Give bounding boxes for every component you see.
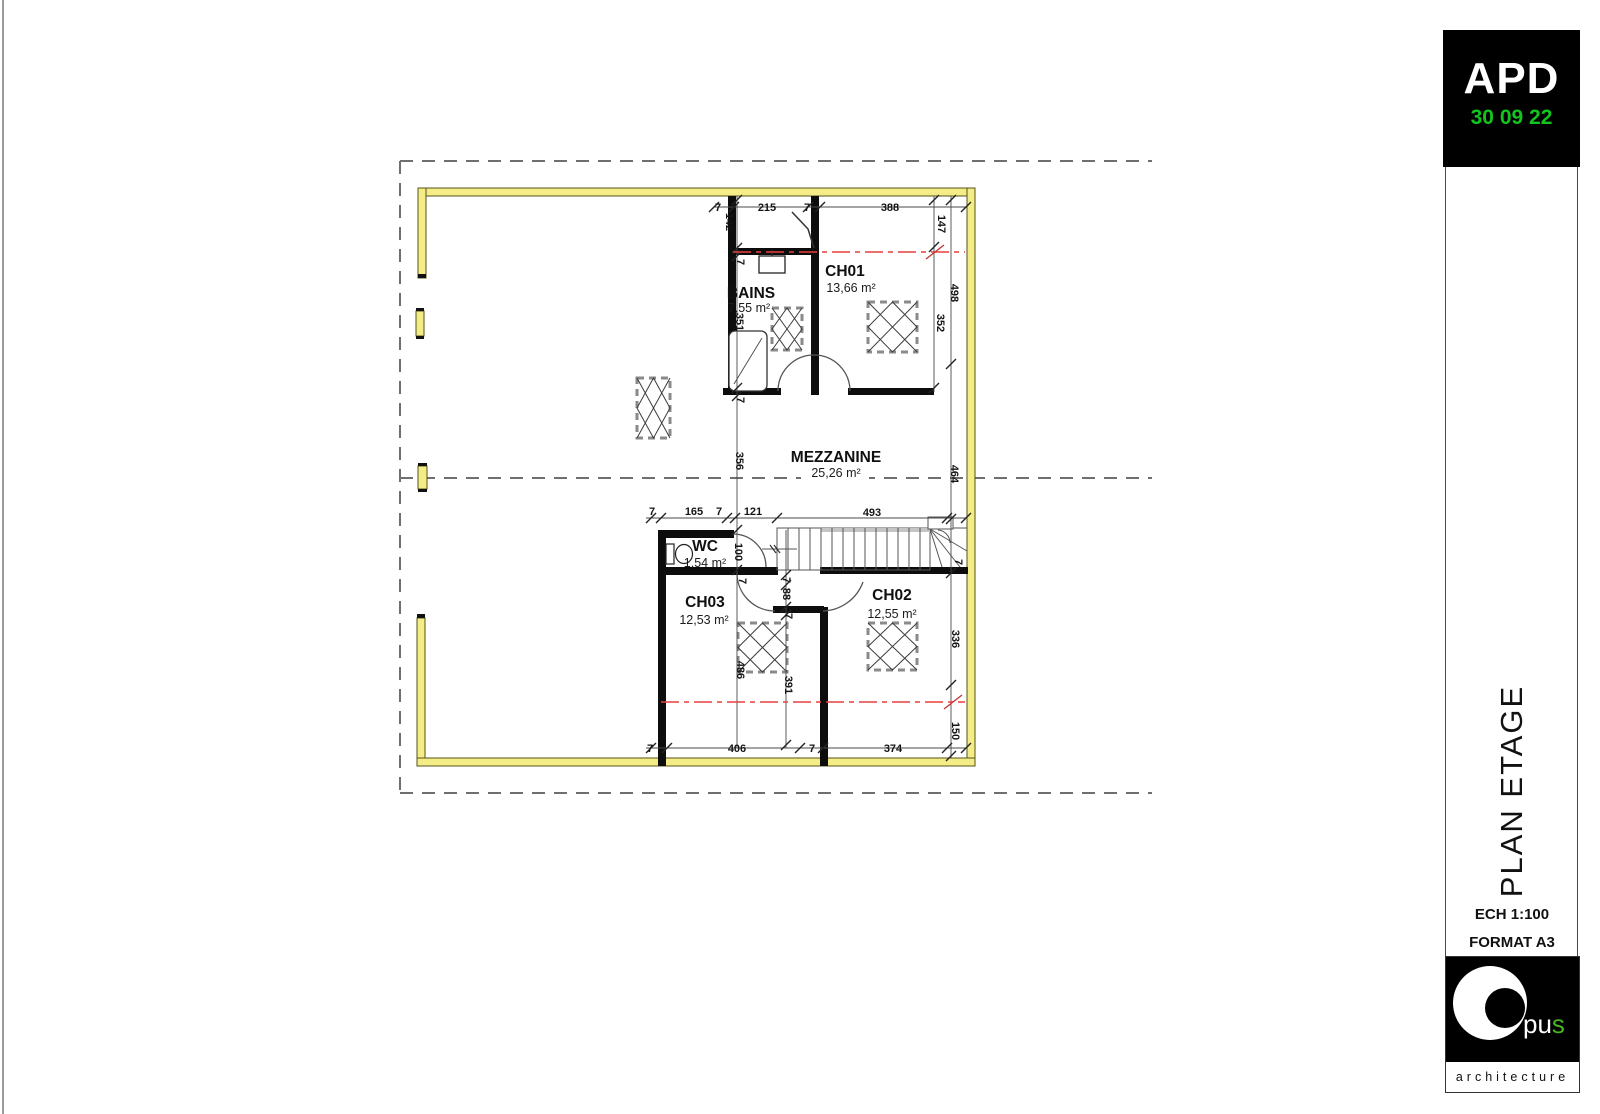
dim-label: 121 [744, 506, 762, 518]
dim-label: 7 [716, 506, 722, 518]
staircase [762, 517, 967, 570]
dim-label: 374 [884, 743, 903, 755]
stair-landing [928, 517, 953, 529]
logo-text-green: s [1552, 1009, 1565, 1039]
dim-label: 391 [782, 676, 794, 694]
room-name-ch02: CH02 [872, 587, 912, 604]
dim-label: 464 [948, 465, 960, 484]
logo-tagline: architecture [1446, 1062, 1579, 1092]
dim-label: 7 [782, 613, 794, 619]
dim-label: 215 [758, 202, 776, 214]
dim-label: 7 [804, 202, 810, 214]
dim-label: 100 [732, 543, 744, 561]
dim-label: 498 [948, 284, 960, 302]
logo-o-inner-icon [1485, 988, 1525, 1028]
logo-text-prefix: pu [1523, 1009, 1552, 1039]
room-area-mezzanine: 25,26 m² [811, 466, 860, 480]
dim-label: 406 [728, 743, 746, 755]
toilet-tank [666, 544, 674, 564]
dim-label: 165 [685, 506, 703, 518]
room-name-bains: BAINS [727, 285, 775, 302]
room-area-ch02: 12,55 m² [867, 607, 916, 621]
dim-label: 7 [780, 577, 792, 583]
dim-label: 142 [723, 213, 735, 231]
title-column [1445, 167, 1578, 1093]
logo-mark: pus [1446, 957, 1579, 1060]
dim-label: 7 [736, 578, 748, 584]
logo-box: pus architecture [1445, 956, 1580, 1093]
dim-label: 7 [734, 397, 746, 403]
dim-label: 150 [949, 722, 961, 740]
format-label: FORMAT A3 [1446, 934, 1578, 951]
dim-label: 486 [734, 661, 746, 679]
dim-label: 7 [809, 743, 815, 755]
dim-label: 7 [715, 202, 721, 214]
sink [759, 256, 785, 273]
interior-walls [658, 196, 968, 766]
dim-label: 388 [881, 202, 899, 214]
room-area-ch03: 12,53 m² [679, 613, 728, 627]
dim-label: 493 [863, 507, 881, 519]
drawing-title: PLAN ETAGE [1494, 685, 1530, 897]
room-area-ch01: 13,66 m² [826, 281, 875, 295]
phase-label: APD [1443, 54, 1580, 104]
dim-label: 356 [733, 452, 745, 470]
door-arc-ch02 [823, 582, 863, 611]
phase-date: 30 09 22 [1443, 106, 1580, 130]
room-name-mezzanine: MEZZANINE [791, 449, 881, 466]
dim-label: 7 [952, 559, 964, 565]
entry-door-leaf [792, 212, 814, 248]
dim-label: 351 [733, 313, 745, 331]
room-name-wc: WC [692, 538, 718, 555]
dim-label: 336 [949, 630, 961, 648]
dim-label: 7 [734, 259, 746, 265]
drawing-sheet: BAINS7,55 m²CH0113,66 m²MEZZANINE25,26 m… [0, 0, 1600, 1114]
dim-label: 7 [649, 506, 655, 518]
room-name-ch03: CH03 [685, 594, 725, 611]
room-name-ch01: CH01 [825, 263, 865, 280]
dim-label: 88 [780, 588, 792, 600]
phase-box: APD 30 09 22 [1443, 30, 1580, 167]
logo-text: pus [1523, 1011, 1565, 1037]
dim-label: 147 [935, 215, 947, 233]
floor-plan-drawing: BAINS7,55 m²CH0113,66 m²MEZZANINE25,26 m… [0, 0, 1600, 1114]
room-area-wc: 1,54 m² [684, 556, 726, 570]
dim-label: 352 [934, 314, 946, 332]
dim-label: 7 [647, 743, 653, 755]
scale-label: ECH 1:100 [1446, 906, 1578, 923]
